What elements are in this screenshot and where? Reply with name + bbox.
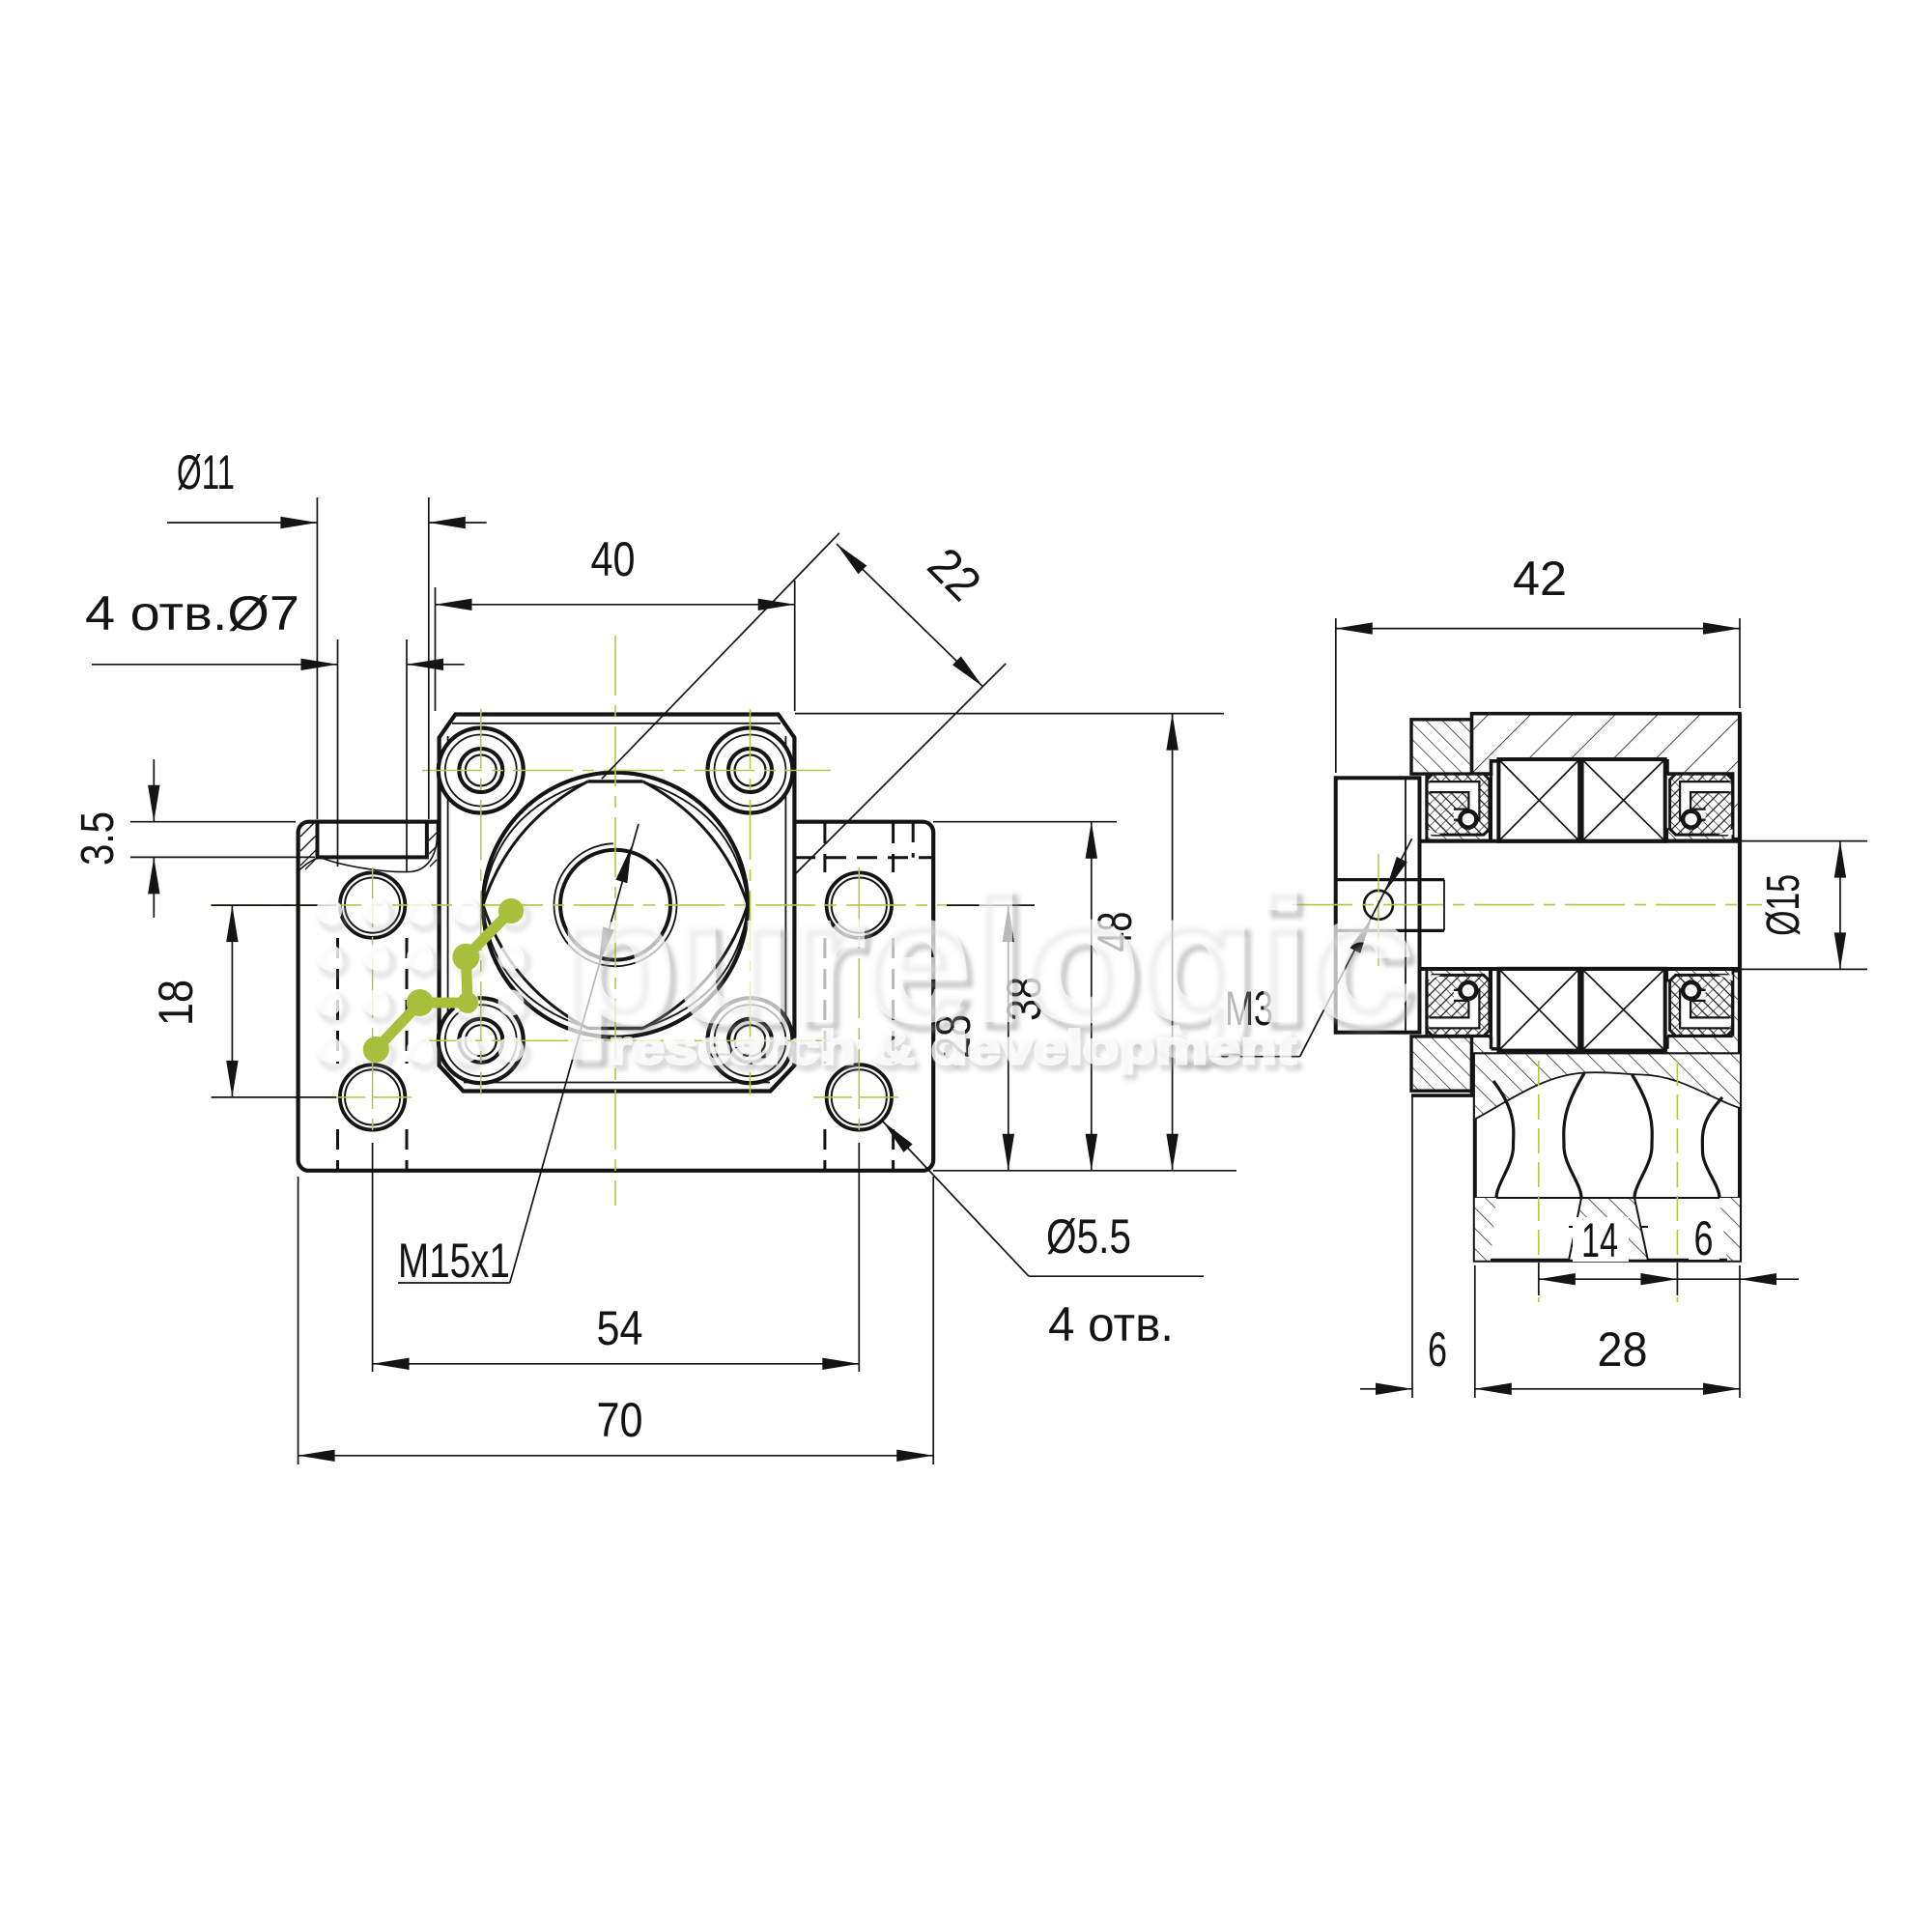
svg-text:54: 54 [597,1301,643,1355]
svg-text:70: 70 [597,1393,643,1447]
svg-text:40: 40 [591,532,636,586]
svg-text:Ø15: Ø15 [1758,874,1809,936]
svg-text:14: 14 [1581,1213,1618,1267]
svg-text:3.5: 3.5 [72,811,124,866]
svg-text:4 отв.Ø7: 4 отв.Ø7 [85,586,299,640]
svg-text:Ø5.5: Ø5.5 [1046,1209,1131,1264]
svg-text:28: 28 [1598,1322,1648,1377]
svg-text:4 отв.: 4 отв. [1048,1297,1174,1351]
svg-text:6: 6 [1428,1322,1447,1377]
svg-text:Ø11: Ø11 [177,445,235,499]
svg-text:42: 42 [1513,552,1567,606]
svg-text:research & development: research & development [609,1022,1296,1074]
svg-text:18: 18 [149,980,203,1026]
svg-text:6: 6 [1694,1211,1714,1265]
svg-text:M15x1: M15x1 [398,1234,510,1288]
